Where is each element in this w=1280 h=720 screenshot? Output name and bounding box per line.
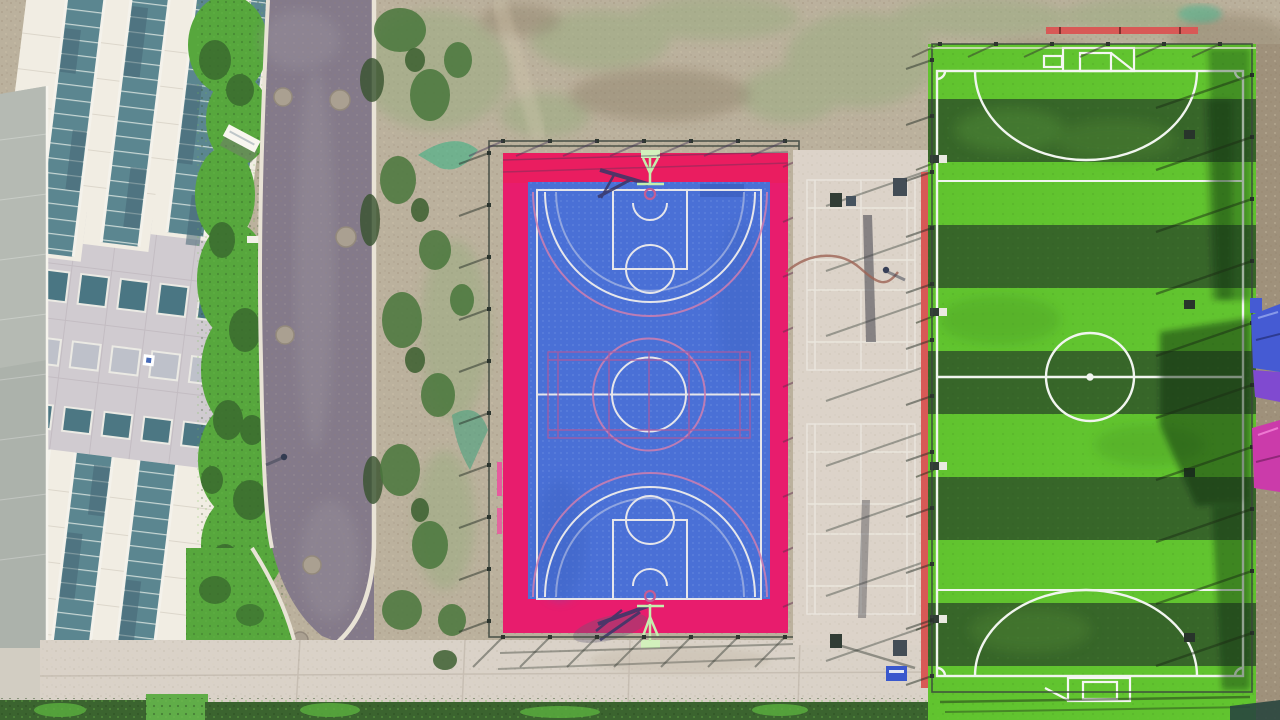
photo-wash [0,0,1280,720]
aerial-photo [0,0,1280,720]
